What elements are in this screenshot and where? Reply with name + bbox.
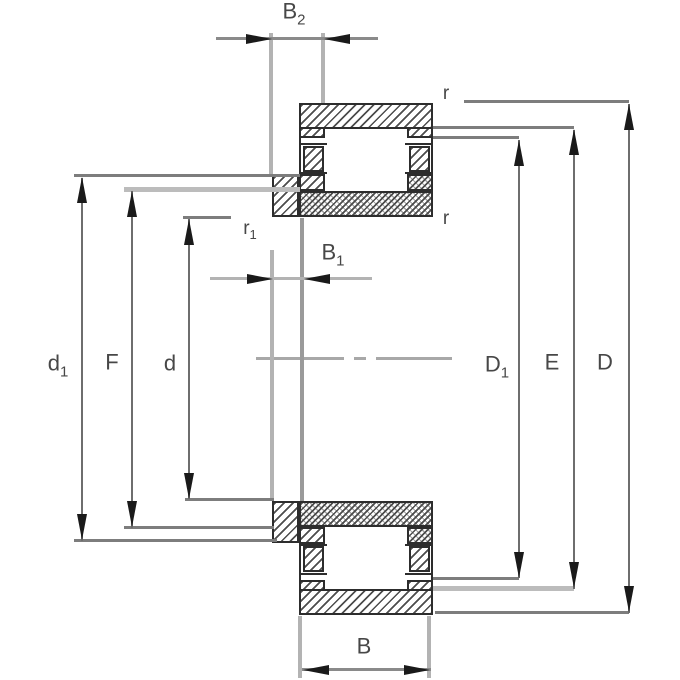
arrowhead-d1-outer-down: [514, 552, 524, 578]
inner-ring-rib-bottom: [407, 527, 433, 544]
label-r-top: r: [443, 84, 449, 106]
arrowhead-f-down: [127, 501, 137, 527]
roller-left-top: [303, 146, 324, 172]
arrowhead-b-right: [404, 665, 430, 675]
connector-d-outer-top: [464, 100, 629, 103]
bearing-left-face-top: [299, 103, 301, 177]
centerline-dash-long-right: [376, 357, 452, 360]
label-r-bottom: r: [443, 209, 449, 231]
label-d1: d1: [48, 353, 69, 380]
ext-line-inner-ring-face: [300, 218, 304, 501]
dim-line-d: [188, 219, 190, 499]
arrowhead-e-up: [569, 129, 579, 155]
dim-line-f: [131, 191, 133, 528]
arrowhead-e-down: [569, 562, 579, 588]
arrowhead-d1-outer-up: [514, 140, 524, 166]
cage-line-top-right-upper: [405, 143, 431, 145]
inner-ring-band-top: [299, 191, 433, 217]
arrowhead-b1-left: [247, 274, 273, 284]
connector-f-top: [124, 187, 300, 192]
dim-line-b1: [210, 277, 372, 280]
angle-ring-bar-bottom: [299, 527, 325, 544]
connector-d1-outer-top: [433, 136, 519, 139]
connector-f-bottom: [124, 526, 274, 529]
bearing-right-face-bottom: [431, 501, 433, 615]
outer-ring-lip-left-top: [299, 127, 325, 138]
centerline-dash-short: [354, 357, 366, 360]
label-d-outer: D: [597, 352, 613, 379]
label-e: E: [545, 352, 560, 379]
bearing-right-face-top: [431, 103, 433, 217]
label-d: d: [164, 353, 176, 380]
connector-e-top: [433, 126, 574, 129]
dim-line-d-outer: [628, 104, 630, 613]
connector-d1-top: [74, 174, 300, 177]
dim-line-b2: [216, 37, 378, 40]
label-b: B: [357, 636, 372, 663]
inner-ring-band-bottom: [299, 501, 433, 527]
ext-line-angle-ring-face: [270, 250, 274, 500]
outer-ring-band-bottom: [299, 589, 433, 615]
roller-left-bottom: [303, 546, 324, 572]
label-r1: r1: [243, 219, 257, 241]
bearing-left-face-bottom: [299, 541, 301, 615]
label-b1: B1: [321, 242, 344, 269]
arrowhead-f-up: [127, 191, 137, 217]
bearing-dimension-diagram: B2 B1 B r r r1 d1 F d D1 E D: [0, 0, 680, 680]
connector-d1-outer-bottom: [433, 577, 519, 580]
cage-line-bottom-right-lower: [405, 573, 431, 575]
outer-ring-band-top: [299, 103, 433, 129]
roller-right-bottom: [409, 546, 430, 572]
angle-ring-bar-top: [299, 174, 325, 191]
arrowhead-d-outer-down: [624, 586, 634, 612]
connector-d1-bottom: [74, 539, 277, 542]
angle-ring-flange-bottom: [272, 501, 299, 543]
arrowhead-d-outer-up: [624, 104, 634, 130]
dim-line-d1-outer: [518, 140, 520, 578]
label-f: F: [105, 352, 118, 379]
inner-ring-rib-top: [407, 174, 433, 191]
dim-line-e: [573, 130, 575, 589]
outer-ring-lip-right-top: [407, 127, 433, 138]
arrowhead-b1-right: [304, 274, 330, 284]
connector-d-bottom: [185, 498, 274, 501]
label-d1-outer: D1: [485, 354, 509, 381]
arrowhead-b2-left: [246, 34, 272, 44]
arrowhead-d1-up: [77, 177, 87, 203]
angle-ring-flange-top: [272, 175, 299, 217]
connector-d-outer-bottom: [435, 611, 629, 614]
connector-e-bottom: [433, 586, 574, 591]
ext-line-b2-left: [269, 33, 273, 176]
arrowhead-b2-right: [324, 34, 350, 44]
dim-line-d1: [81, 178, 83, 541]
roller-right-top: [409, 146, 430, 172]
cage-line-top-left-upper: [301, 143, 327, 145]
arrowhead-d1-down: [77, 514, 87, 540]
arrowhead-d-down: [184, 473, 194, 499]
label-b2: B2: [282, 1, 305, 28]
arrowhead-d-up: [184, 219, 194, 245]
cage-line-bottom-left-lower: [301, 573, 327, 575]
arrowhead-b-left: [303, 665, 329, 675]
